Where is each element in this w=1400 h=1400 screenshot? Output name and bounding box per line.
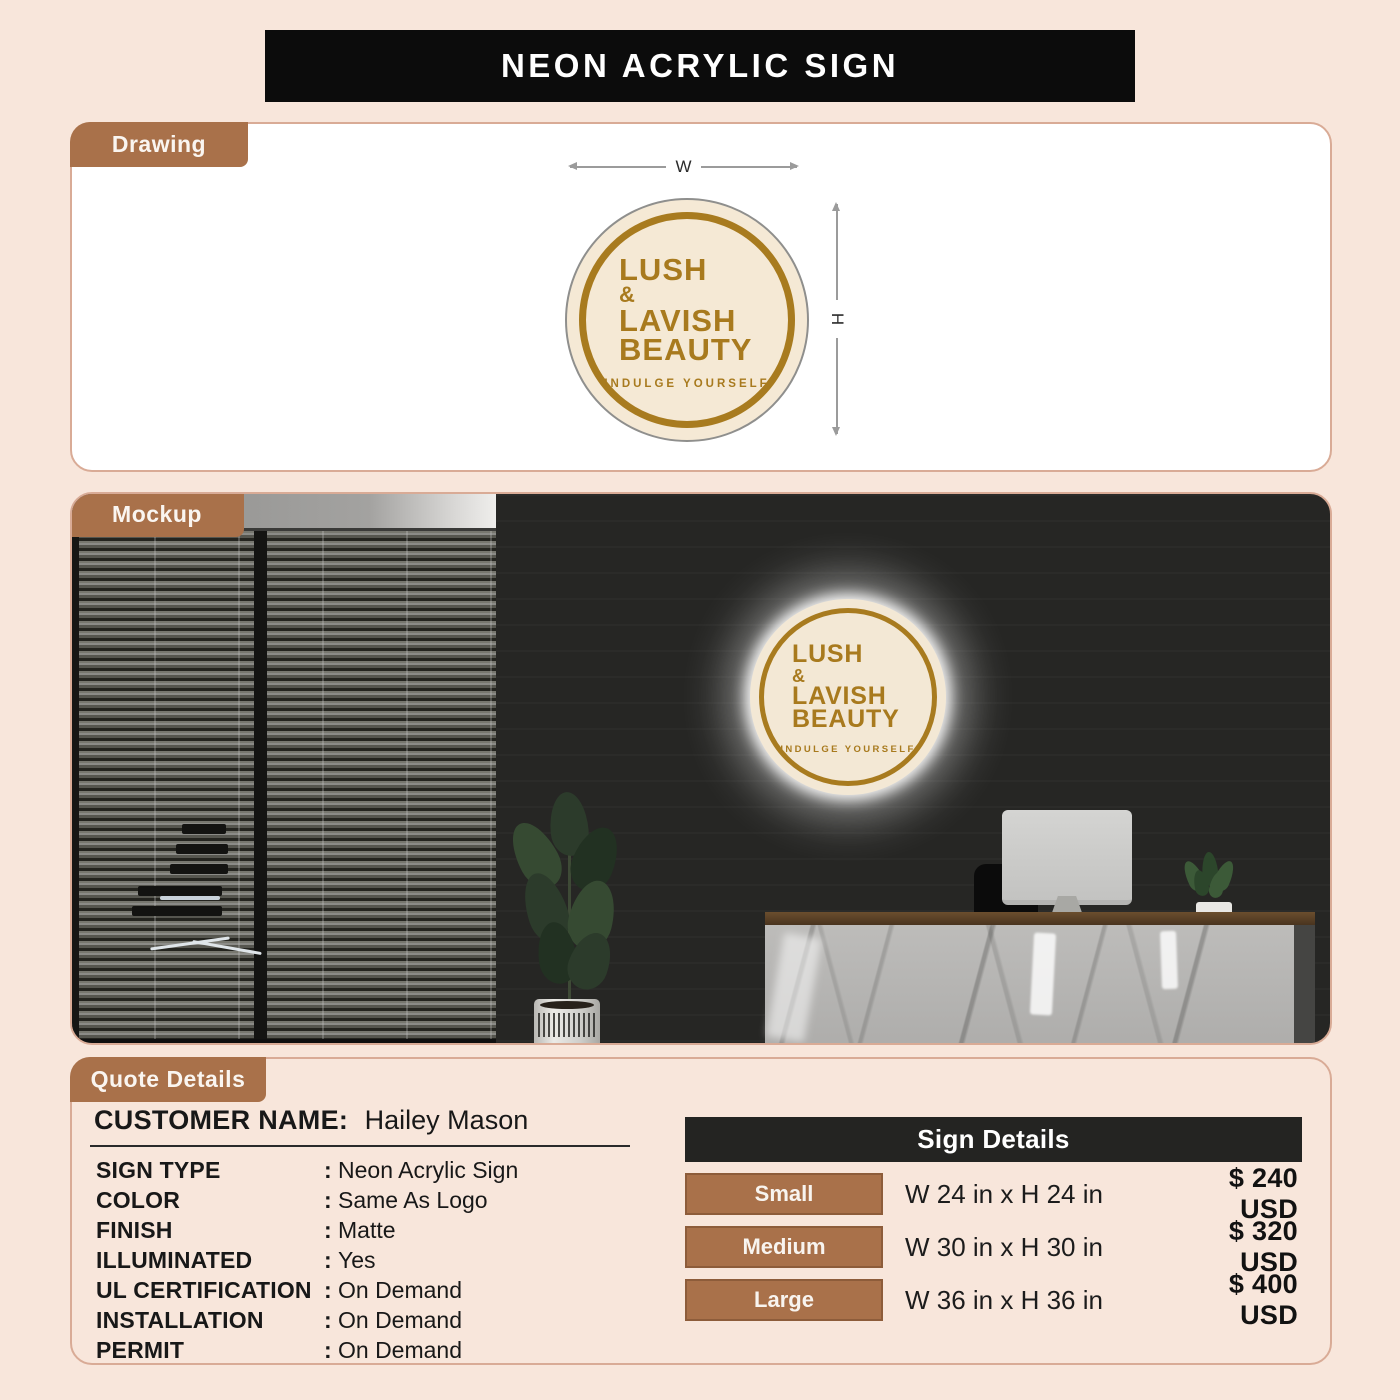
logo-tagline: INDULGE YOURSELF [567, 378, 807, 390]
bent-slat-mark [160, 896, 220, 900]
customer-name-value: Hailey Mason [365, 1105, 529, 1135]
arrowhead-left-icon [568, 162, 577, 170]
quote-details-panel: Quote Details CUSTOMER NAME: Hailey Maso… [70, 1057, 1332, 1365]
spec-label: COLOR [96, 1187, 324, 1214]
arrowhead-right-icon [790, 162, 799, 170]
desk-top [765, 912, 1315, 925]
quote-sheet: NEON ACRYLIC SIGN Drawing W H LUSH & LAV… [0, 0, 1400, 1400]
quote-details-tab: Quote Details [70, 1057, 266, 1102]
spec-row-illuminated: ILLUMINATED : Yes [96, 1245, 676, 1275]
dimension-line [836, 204, 838, 300]
mockup-panel: LUSH & LAVISH BEAUTY INDULGE YOURSELF [70, 492, 1332, 1045]
spec-row-ul-certification: UL CERTIFICATION : On Demand [96, 1275, 676, 1305]
sign-details-table: Sign Details Small W 24 in x H 24 in $ 2… [685, 1117, 1302, 1321]
spec-row-installation: INSTALLATION : On Demand [96, 1305, 676, 1335]
computer-monitor [1002, 810, 1132, 905]
spec-label: PERMIT [96, 1337, 324, 1364]
page-title: NEON ACRYLIC SIGN [501, 47, 899, 85]
broken-slat [176, 844, 228, 854]
broken-slat [170, 864, 228, 874]
spec-value: On Demand [338, 1307, 462, 1334]
desk-plant [1178, 852, 1244, 904]
sign-details-header: Sign Details [685, 1117, 1302, 1162]
spec-row-finish: FINISH : Matte [96, 1215, 676, 1245]
marble-highlight [1160, 931, 1178, 990]
drawing-tab-label: Drawing [112, 131, 206, 158]
pot-soil [540, 1001, 594, 1009]
spec-label: ILLUMINATED [96, 1247, 324, 1274]
mockup-tab: Mockup [70, 492, 244, 537]
spec-value: Neon Acrylic Sign [338, 1157, 518, 1184]
window-frame-left [72, 531, 79, 1045]
row-dimensions: W 36 in x H 36 in [905, 1285, 1213, 1316]
spec-colon: : [324, 1217, 338, 1244]
width-label: W [675, 157, 691, 177]
row-price: $ 400 USD [1213, 1269, 1302, 1331]
size-chip-medium: Medium [685, 1226, 883, 1268]
size-chip-small: Small [685, 1173, 883, 1215]
spec-label: FINISH [96, 1217, 324, 1244]
sign-details-row-small: Small W 24 in x H 24 in $ 240 USD [685, 1173, 1302, 1215]
size-label: Medium [742, 1234, 825, 1260]
marble-highlight [766, 932, 822, 1042]
logo-line-4: BEAUTY [619, 335, 752, 364]
logo-line-1: LUSH [792, 643, 900, 667]
height-label: H [827, 313, 847, 325]
drawing-panel: Drawing W H LUSH & LAVISH BEAUTY INDULGE… [70, 122, 1332, 472]
desk-marble-front [765, 925, 1294, 1045]
neon-sign-mockup: LUSH & LAVISH BEAUTY INDULGE YOURSELF [750, 599, 946, 795]
pot-stripe-pattern [538, 1013, 596, 1037]
spec-colon: : [324, 1307, 338, 1334]
arrowhead-up-icon [832, 202, 840, 211]
desk-side-face [1294, 925, 1315, 1045]
logo-wordmark: LUSH & LAVISH BEAUTY [619, 255, 752, 364]
spec-row-permit: PERMIT : On Demand [96, 1335, 676, 1365]
size-chip-large: Large [685, 1279, 883, 1321]
spec-colon: : [324, 1337, 338, 1364]
row-dimensions: W 24 in x H 24 in [905, 1179, 1213, 1210]
window-frame-divider [254, 531, 267, 1045]
spec-value: On Demand [338, 1277, 462, 1304]
sign-details-title: Sign Details [917, 1124, 1069, 1155]
arrowhead-down-icon [832, 427, 840, 436]
customer-name-underline [90, 1145, 630, 1147]
row-dimensions: W 30 in x H 30 in [905, 1232, 1213, 1263]
spec-row-sign-type: SIGN TYPE : Neon Acrylic Sign [96, 1155, 676, 1185]
drawing-tab: Drawing [70, 122, 248, 167]
spec-colon: : [324, 1187, 338, 1214]
sign-details-row-large: Large W 36 in x H 36 in $ 400 USD [685, 1279, 1302, 1321]
spec-colon: : [324, 1157, 338, 1184]
broken-slat [132, 906, 222, 916]
quote-details-tab-label: Quote Details [91, 1066, 246, 1093]
spec-label: UL CERTIFICATION [96, 1277, 324, 1304]
broken-slat [138, 886, 222, 896]
spec-value: Matte [338, 1217, 396, 1244]
spec-value: Same As Logo [338, 1187, 488, 1214]
dimension-line [836, 338, 838, 434]
width-dimension-arrow: W [570, 159, 797, 175]
logo-line-4: BEAUTY [792, 708, 900, 732]
size-label: Small [755, 1181, 814, 1207]
plant-pot [534, 999, 600, 1045]
window-blinds [72, 531, 496, 1045]
floor-plant [510, 792, 632, 1007]
spec-value: Yes [338, 1247, 376, 1274]
sign-details-row-medium: Medium W 30 in x H 30 in $ 320 USD [685, 1226, 1302, 1268]
customer-name-label: CUSTOMER NAME: [94, 1105, 348, 1135]
marble-highlight [1030, 932, 1056, 1015]
dimension-line [701, 166, 797, 168]
logo-sign-drawing: LUSH & LAVISH BEAUTY INDULGE YOURSELF [565, 198, 809, 442]
spec-colon: : [324, 1247, 338, 1274]
dimension-line [570, 166, 666, 168]
broken-slat [182, 824, 226, 834]
size-label: Large [754, 1287, 814, 1313]
logo-wordmark: LUSH & LAVISH BEAUTY [792, 643, 900, 732]
spec-row-color: COLOR : Same As Logo [96, 1185, 676, 1215]
logo-line-3: LAVISH [619, 306, 752, 335]
spec-label: SIGN TYPE [96, 1157, 324, 1184]
spec-list: SIGN TYPE : Neon Acrylic Sign COLOR : Sa… [96, 1155, 676, 1365]
customer-name-row: CUSTOMER NAME: Hailey Mason [94, 1105, 528, 1136]
title-banner: NEON ACRYLIC SIGN [265, 30, 1135, 102]
spec-value: On Demand [338, 1337, 462, 1364]
height-dimension-arrow: H [829, 204, 845, 434]
blinds-bottom-rail [72, 1039, 496, 1045]
logo-tagline: INDULGE YOURSELF [750, 744, 946, 755]
spec-label: INSTALLATION [96, 1307, 324, 1334]
spec-colon: : [324, 1277, 338, 1304]
mockup-tab-label: Mockup [112, 501, 202, 528]
logo-line-1: LUSH [619, 255, 752, 284]
